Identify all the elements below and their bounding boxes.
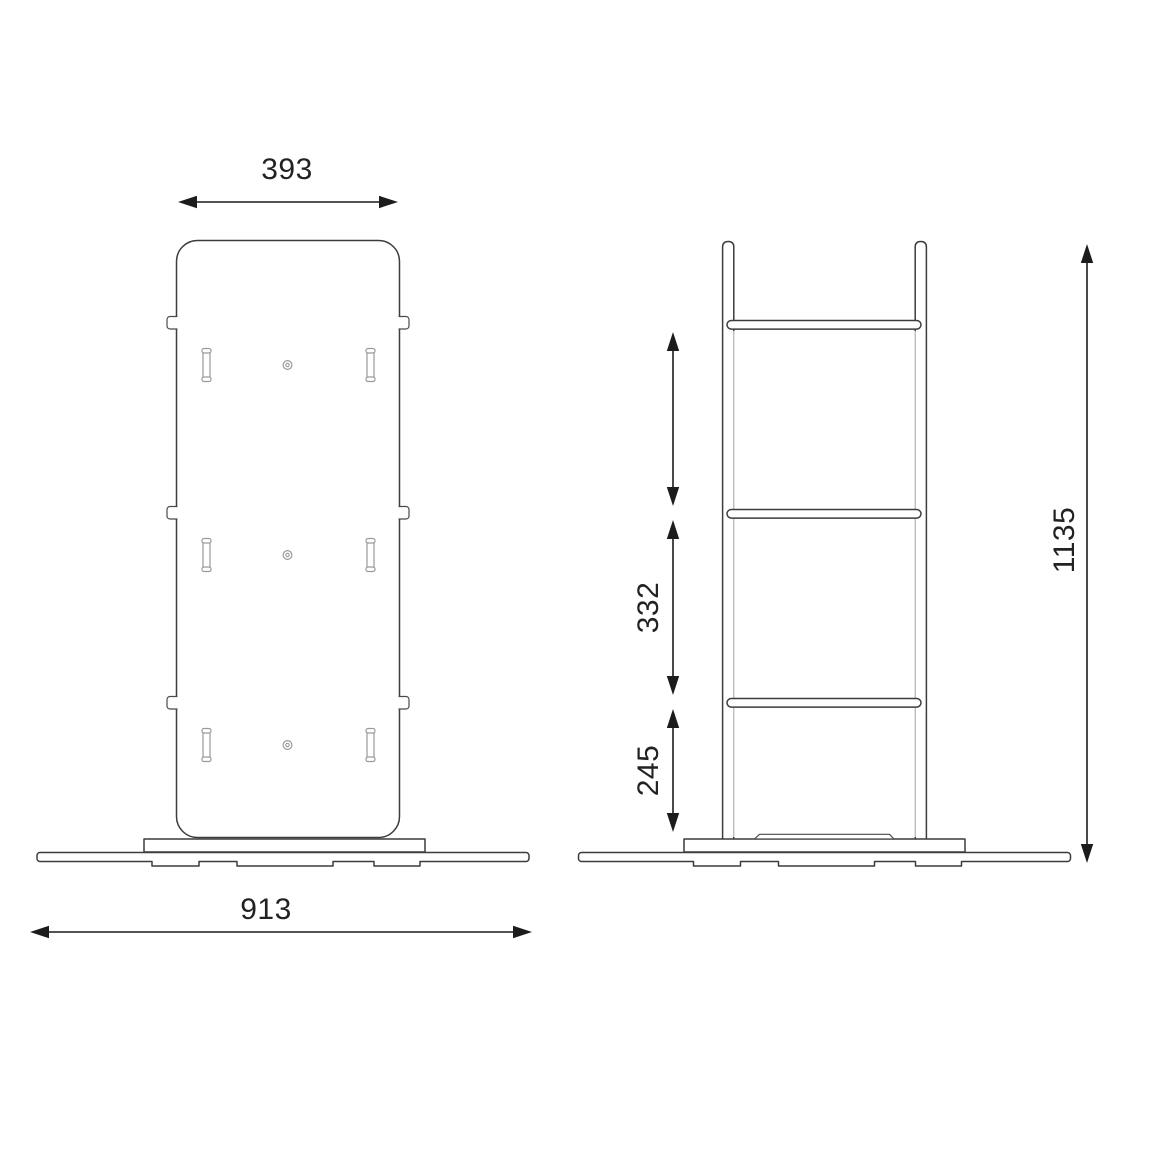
arrowhead-down-icon: [1081, 844, 1093, 863]
arrowhead-down-icon: [667, 813, 679, 832]
shelf-edge-bottom: [727, 699, 921, 708]
arrowhead-up-icon: [1081, 244, 1093, 263]
base-runner-plate: [37, 853, 529, 867]
panel-width-dimension: 393: [178, 153, 398, 208]
panel-width-label: 393: [261, 153, 313, 186]
shelf-tab-left: [167, 317, 178, 330]
slot-left: [203, 729, 210, 760]
shelf-tab-right: [399, 507, 410, 520]
slot-right-cap: [366, 757, 375, 762]
front-view: 393: [30, 153, 532, 938]
slot-left: [203, 539, 210, 570]
slot-left-cap: [202, 539, 211, 544]
upper-gap-dimension: [667, 332, 679, 506]
slot-right: [367, 729, 374, 760]
shelf-spacing-dimension: 332: [632, 520, 679, 695]
slot-right-cap: [366, 567, 375, 572]
base-gap-label: 245: [632, 745, 665, 797]
slot-right-cap: [366, 377, 375, 382]
screw-hole-icon: [283, 361, 292, 370]
front-base: [37, 839, 529, 866]
slot-left-cap: [202, 757, 211, 762]
arrowhead-left-icon: [178, 196, 197, 208]
arrowhead-left-icon: [30, 926, 49, 938]
slot-left-cap: [202, 349, 211, 354]
arrowhead-up-icon: [667, 332, 679, 351]
arrowhead-up-icon: [667, 709, 679, 728]
shelf-spacing-label: 332: [632, 582, 665, 634]
side-base: [579, 834, 1071, 866]
slot-right: [367, 349, 374, 380]
shelf-tab-right: [399, 317, 410, 330]
slot-left: [203, 349, 210, 380]
shelf-edge-top: [727, 321, 921, 330]
arrowhead-down-icon: [667, 487, 679, 506]
base-runner-plate: [579, 853, 1071, 867]
overall-height-dimension: 1135: [1048, 244, 1093, 863]
arrowhead-right-icon: [513, 926, 532, 938]
slot-right-cap: [366, 729, 375, 734]
shelf-tab-right: [399, 697, 410, 710]
base-cross-plate: [684, 839, 965, 852]
side-view: 332 245 1135: [579, 242, 1094, 867]
dimension-drawing: 393: [0, 0, 1150, 1150]
slot-left-cap: [202, 729, 211, 734]
arrowhead-right-icon: [379, 196, 398, 208]
shelf-tab-left: [167, 697, 178, 710]
slot-right-cap: [366, 349, 375, 354]
arrowhead-down-icon: [667, 676, 679, 695]
arrowhead-up-icon: [667, 520, 679, 539]
post-left: [723, 242, 734, 840]
base-width-dimension: 913: [30, 893, 532, 938]
base-gap-dimension: 245: [632, 709, 679, 832]
base-width-label: 913: [240, 893, 292, 926]
slot-left-cap: [202, 567, 211, 572]
base-cross-plate: [144, 839, 425, 852]
overall-height-label: 1135: [1048, 507, 1081, 574]
shelf-tab-left: [167, 507, 178, 520]
bottom-plinth: [755, 834, 895, 839]
post-right: [915, 242, 926, 840]
slot-left-cap: [202, 377, 211, 382]
screw-hole-icon: [283, 551, 292, 560]
screw-hole-icon: [283, 741, 292, 750]
shelf-edge-middle: [727, 510, 921, 519]
slot-right-cap: [366, 539, 375, 544]
slot-right: [367, 539, 374, 570]
